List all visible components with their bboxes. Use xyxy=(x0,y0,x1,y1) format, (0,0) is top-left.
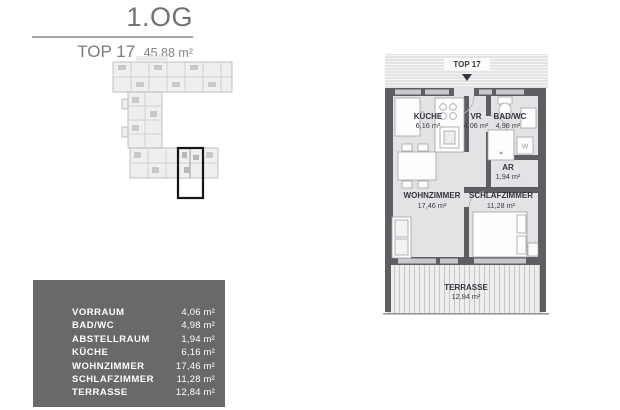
balcony-stub xyxy=(122,99,128,109)
header: 1.OG TOP 17 45,88 m² xyxy=(32,2,193,62)
room-area-schlafzimmer: 11,28 m² xyxy=(487,201,516,210)
room-area: 1,94 m² xyxy=(181,333,215,346)
room-name: SCHLAFZIMMER xyxy=(72,373,154,386)
shower xyxy=(488,130,514,160)
chair xyxy=(418,144,428,151)
room-area: 4,06 m² xyxy=(181,306,215,319)
terrace-wall-right xyxy=(540,265,546,312)
chair xyxy=(402,181,412,188)
terrace-edge xyxy=(383,313,549,315)
room-label-vr: VR xyxy=(470,112,481,121)
dining-table xyxy=(398,152,436,180)
room-name: KÜCHE xyxy=(72,346,108,359)
room-area-vr: 4,06 m² xyxy=(464,121,489,130)
washing-machine-label: W xyxy=(522,144,529,151)
table-row: WOHNZIMMER 17,46 m² xyxy=(72,360,215,373)
wall-right xyxy=(538,88,546,265)
sofa-cushion xyxy=(395,239,408,255)
sofa-cushion xyxy=(395,220,408,237)
table-row: SCHLAFZIMMER 11,28 m² xyxy=(72,373,215,386)
room-label-wohnzimmer: WOHNZIMMER xyxy=(404,191,461,200)
building-overview-map xyxy=(100,55,240,205)
room-label-ar: AR xyxy=(502,163,514,172)
room-area-wohnzimmer: 17,46 m² xyxy=(418,201,447,210)
room-name: BAD/WC xyxy=(72,319,114,332)
pillow xyxy=(517,236,526,254)
room-area-kueche: 6,16 m² xyxy=(416,121,441,130)
room-area: 12,84 m² xyxy=(176,386,215,399)
terrace-wall-left xyxy=(385,265,391,312)
entrance-unit-label: TOP 17 xyxy=(453,60,481,69)
room-area-ar: 1,94 m² xyxy=(496,172,521,181)
room-label-kueche: KÜCHE xyxy=(414,112,443,121)
room-label-badwc: BAD/WC xyxy=(494,112,527,121)
room-area: 11,28 m² xyxy=(177,373,215,386)
table-row: KÜCHE 6,16 m² xyxy=(72,346,215,359)
room-name: VORRAUM xyxy=(72,306,125,319)
room-area: 4,98 m² xyxy=(181,319,215,332)
room-name: ABSTELLRAUM xyxy=(72,333,150,346)
table-row: BAD/WC 4,98 m² xyxy=(72,319,215,332)
room-area: 17,46 m² xyxy=(176,360,215,373)
sink-basin xyxy=(444,131,455,144)
room-name: WOHNZIMMER xyxy=(72,360,145,373)
shower-drain xyxy=(500,152,502,154)
room-area-badwc: 4,98 m² xyxy=(496,121,521,130)
balcony-stub xyxy=(122,127,128,137)
room-area: 6,16 m² xyxy=(181,346,215,359)
room-area-terrasse: 12,84 m² xyxy=(452,292,481,301)
nightstand xyxy=(528,243,538,256)
room-label-schlafzimmer: SCHLAFZIMMER xyxy=(469,191,533,200)
room-label-terrasse: TERRASSE xyxy=(444,283,488,292)
unit-floorplan: TOP 17 xyxy=(378,50,560,325)
floor-title: 1.OG xyxy=(32,2,193,38)
table-row: TERRASSE 12,84 m² xyxy=(72,386,215,399)
table-row: ABSTELLRAUM 1,94 m² xyxy=(72,333,215,346)
stair-hatch xyxy=(136,56,168,61)
chair xyxy=(418,181,428,188)
chair xyxy=(402,144,412,151)
pillow xyxy=(517,215,526,233)
room-name: TERRASSE xyxy=(72,386,128,399)
table-row: VORRAUM 4,06 m² xyxy=(72,306,215,319)
room-area-table: VORRAUM 4,06 m² BAD/WC 4,98 m² ABSTELLRA… xyxy=(33,280,225,407)
